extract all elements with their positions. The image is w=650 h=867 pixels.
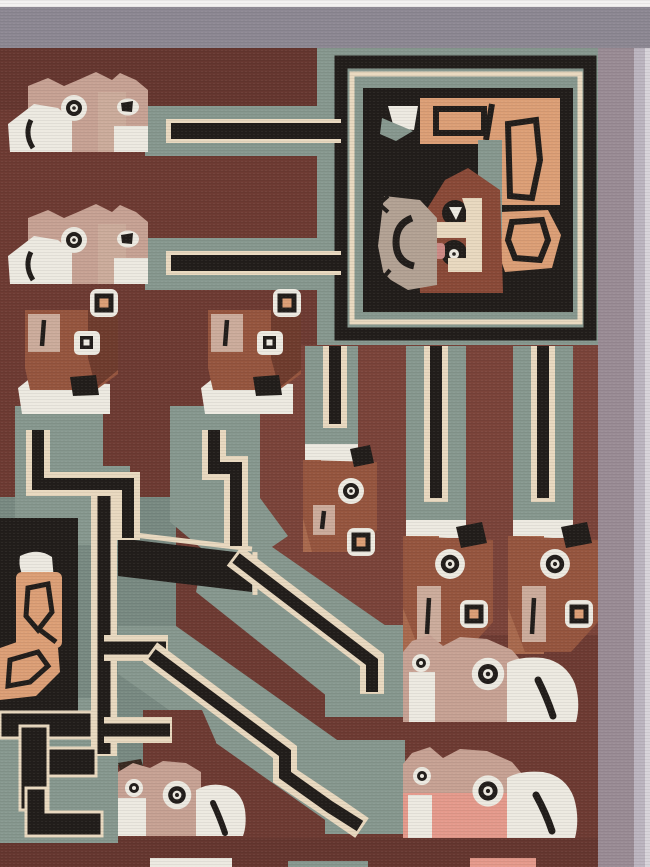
tapestry-image <box>0 0 650 867</box>
tapestry-photo: Woven tapestry fragment with stylized an… <box>0 0 650 867</box>
weave-texture <box>0 0 650 867</box>
